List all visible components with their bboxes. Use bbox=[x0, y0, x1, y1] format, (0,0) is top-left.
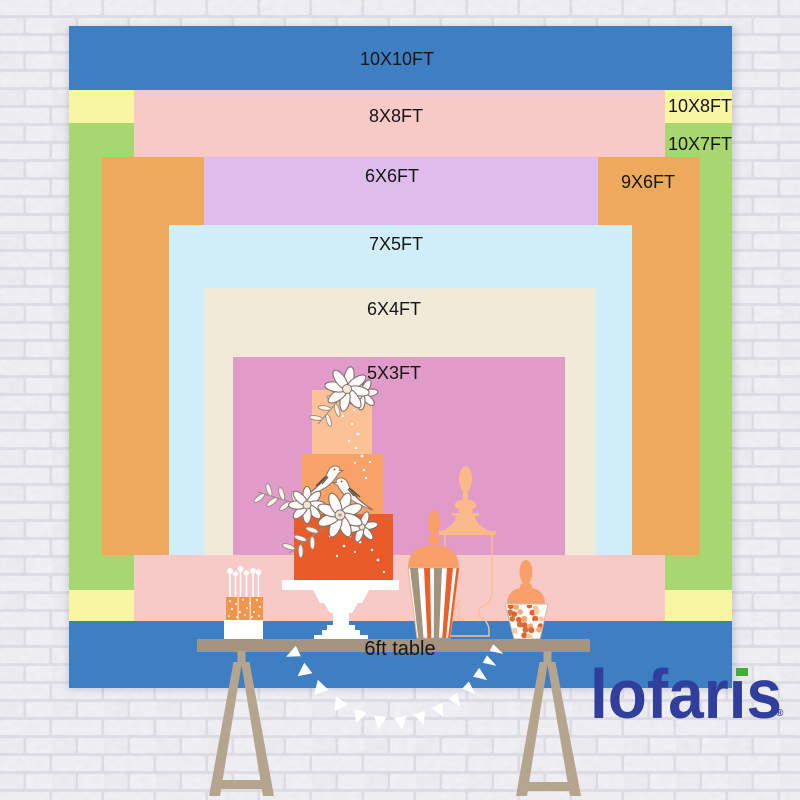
svg-text:6X4FT: 6X4FT bbox=[367, 299, 421, 319]
svg-text:8X8FT: 8X8FT bbox=[369, 106, 423, 126]
svg-text:®: ® bbox=[776, 708, 784, 719]
svg-text:5X3FT: 5X3FT bbox=[367, 363, 421, 383]
svg-text:9X6FT: 9X6FT bbox=[621, 172, 675, 192]
svg-text:10X7FT: 10X7FT bbox=[668, 134, 732, 154]
svg-text:6ft table: 6ft table bbox=[364, 638, 435, 660]
svg-text:7X5FT: 7X5FT bbox=[369, 234, 423, 254]
svg-text:10X10FT: 10X10FT bbox=[360, 49, 434, 69]
svg-text:6X6FT: 6X6FT bbox=[365, 166, 419, 186]
svg-text:lofarıs: lofarıs bbox=[590, 655, 782, 733]
svg-text:10X8FT: 10X8FT bbox=[668, 96, 732, 116]
